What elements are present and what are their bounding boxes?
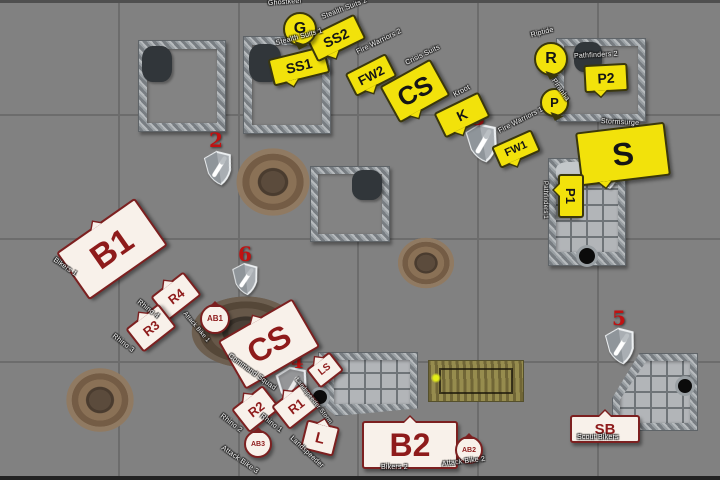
crater-terrain[interactable]: [64, 366, 136, 434]
trench-terrain[interactable]: [428, 360, 524, 402]
unit-tag-pathfinders-1[interactable]: P1: [558, 174, 584, 218]
unit-tag-pathfinders-2[interactable]: P2: [583, 63, 628, 93]
unit-caption-scout-bikers: Scout Bikers: [577, 434, 619, 441]
unit-caption-pathfinders-1: Pathfinders 1: [542, 181, 548, 219]
ruin-terrain[interactable]: [138, 40, 226, 132]
unit-pin-attack-bike-1[interactable]: AB1: [200, 304, 230, 334]
shield-icon[interactable]: [202, 148, 237, 188]
objective-number: 6: [238, 244, 252, 264]
unit-pin-riptide[interactable]: R: [534, 42, 568, 76]
marker-dot: [431, 373, 441, 383]
unit-pin-attack-bike-3[interactable]: AB3: [244, 430, 272, 458]
battle-map: 2 3 4 5 6 G Ghostkeel SS1 Stealth Suits …: [0, 0, 720, 480]
objective-number: 5: [612, 308, 626, 328]
unit-caption-ghostkeel: Ghostkeel: [268, 0, 302, 7]
unit-caption-fire-warriors-1: Fire Warriors 1: [497, 106, 544, 134]
crater-terrain[interactable]: [234, 146, 312, 218]
unit-caption-stormsurge: Stormsurge: [601, 118, 640, 127]
shield-icon[interactable]: [602, 324, 639, 368]
unit-tag-bikers-1[interactable]: B1: [56, 198, 168, 301]
unit-tag-stormsurge[interactable]: S: [575, 122, 671, 187]
grid-line: [477, 0, 479, 480]
unit-caption-riptide: Riptide: [530, 26, 554, 38]
ruin-terrain[interactable]: [310, 166, 390, 242]
shield-icon[interactable]: [230, 261, 261, 298]
objective-number: 2: [209, 130, 223, 150]
unit-caption-bikers-2: Bikers 2: [381, 464, 408, 471]
board-edge: [0, 476, 720, 480]
crater-terrain[interactable]: [396, 236, 456, 290]
